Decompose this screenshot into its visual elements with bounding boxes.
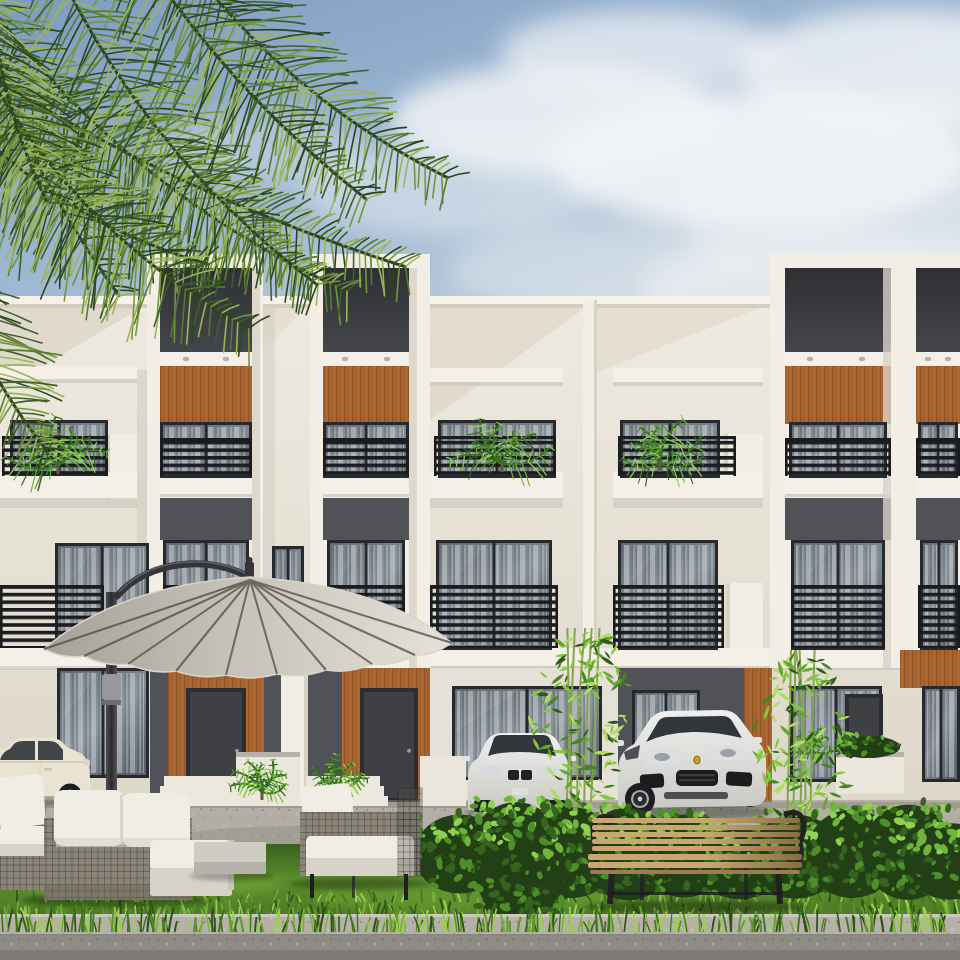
bench-seat-slats — [588, 854, 802, 874]
rendering-canvas: Architectural rendering: modern three-st… — [0, 0, 960, 960]
gold-crest-badge — [694, 756, 700, 764]
scene-rendering: Architectural rendering: modern three-st… — [0, 0, 960, 960]
bench-back-slats — [592, 818, 800, 851]
sofa-left-module — [0, 774, 48, 890]
grille — [676, 770, 718, 786]
coffee-table — [190, 842, 274, 881]
